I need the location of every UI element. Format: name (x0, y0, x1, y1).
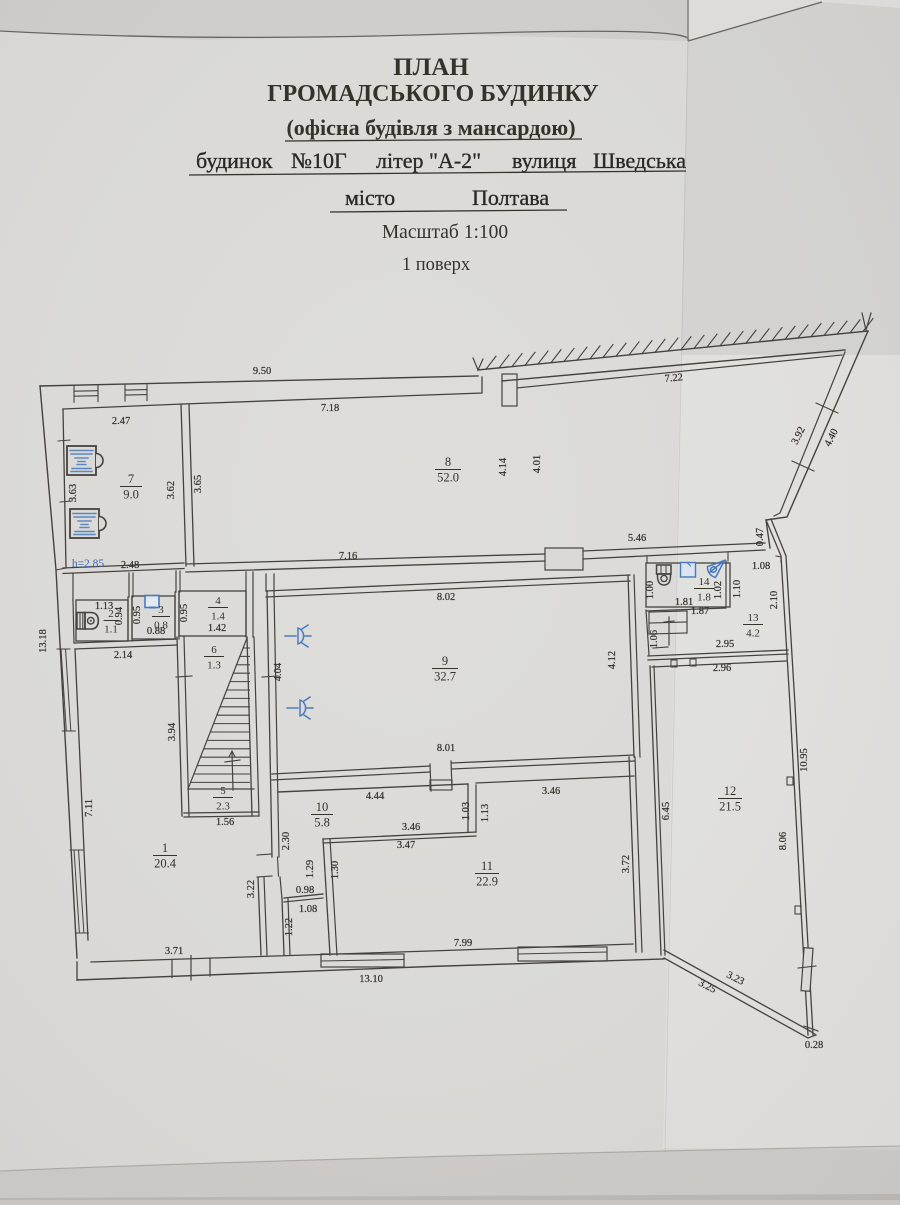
svg-text:4.01: 4.01 (532, 455, 543, 473)
svg-text:6.45: 6.45 (661, 802, 672, 820)
svg-text:1.02: 1.02 (713, 581, 724, 599)
svg-text:2.3: 2.3 (216, 801, 230, 813)
svg-text:4.2: 4.2 (746, 628, 760, 640)
svg-text:1.08: 1.08 (752, 561, 770, 572)
svg-text:1.22: 1.22 (284, 918, 295, 936)
svg-text:1.87: 1.87 (691, 606, 709, 617)
svg-text:10: 10 (316, 800, 329, 814)
svg-text:2.30: 2.30 (281, 832, 292, 850)
svg-text:1.56: 1.56 (216, 817, 234, 828)
svg-text:3: 3 (158, 604, 164, 616)
svg-text:1.08: 1.08 (299, 904, 317, 915)
svg-text:Масштаб 1:100: Масштаб 1:100 (382, 222, 508, 243)
svg-text:7: 7 (128, 472, 134, 486)
svg-text:ГРОМАДСЬКОГО БУДИНКУ: ГРОМАДСЬКОГО БУДИНКУ (267, 81, 599, 107)
svg-text:3.94: 3.94 (167, 722, 178, 741)
svg-text:2.14: 2.14 (114, 650, 133, 661)
svg-text:8.01: 8.01 (437, 743, 455, 754)
svg-text:2.95: 2.95 (716, 639, 734, 650)
svg-text:3.47: 3.47 (397, 840, 415, 851)
svg-text:1.00: 1.00 (645, 581, 656, 599)
svg-text:0.98: 0.98 (296, 885, 314, 896)
svg-text:(офісна будівля з мансардою): (офісна будівля з мансардою) (286, 115, 575, 140)
svg-text:2.47: 2.47 (112, 416, 130, 427)
svg-text:2: 2 (108, 608, 114, 620)
svg-text:52.0: 52.0 (437, 471, 459, 485)
svg-text:№10Г: №10Г (291, 148, 347, 173)
svg-text:0.95: 0.95 (179, 604, 190, 622)
svg-text:4.44: 4.44 (366, 791, 385, 802)
svg-text:2.10: 2.10 (769, 591, 780, 609)
svg-text:2.96: 2.96 (713, 663, 731, 674)
svg-text:32.7: 32.7 (434, 670, 456, 684)
svg-text:1.4: 1.4 (211, 611, 225, 623)
svg-text:0.8: 0.8 (154, 620, 168, 632)
svg-text:14: 14 (699, 576, 711, 588)
svg-text:1.29: 1.29 (305, 860, 316, 878)
svg-text:1.10: 1.10 (732, 580, 743, 598)
svg-text:1 поверх: 1 поверх (402, 255, 471, 275)
svg-text:9.50: 9.50 (253, 366, 271, 377)
svg-text:3.22: 3.22 (246, 880, 257, 898)
svg-text:20.4: 20.4 (154, 857, 177, 871)
svg-text:1.03: 1.03 (461, 802, 472, 820)
svg-text:8.06: 8.06 (778, 832, 789, 850)
svg-text:3.46: 3.46 (402, 822, 420, 833)
svg-text:4: 4 (215, 595, 221, 607)
svg-text:5.8: 5.8 (314, 816, 330, 830)
svg-text:3.71: 3.71 (165, 946, 183, 957)
svg-text:3.62: 3.62 (166, 481, 177, 499)
svg-text:21.5: 21.5 (719, 800, 741, 814)
svg-text:3.65: 3.65 (193, 475, 204, 493)
svg-text:1.42: 1.42 (208, 623, 226, 634)
svg-text:7.11: 7.11 (84, 799, 95, 817)
svg-text:Шведська: Шведська (593, 148, 686, 173)
svg-text:10.95: 10.95 (799, 748, 810, 772)
svg-text:7.99: 7.99 (454, 938, 472, 949)
svg-text:будинок: будинок (196, 148, 273, 173)
svg-text:3.46: 3.46 (542, 786, 560, 797)
svg-text:13.10: 13.10 (359, 974, 383, 985)
svg-text:13.18: 13.18 (38, 629, 49, 653)
svg-text:0.94: 0.94 (114, 606, 125, 625)
svg-text:3.63: 3.63 (68, 484, 79, 502)
svg-text:1.3: 1.3 (207, 660, 221, 672)
svg-text:2.48: 2.48 (121, 560, 139, 571)
svg-text:вулиця: вулиця (512, 148, 576, 173)
svg-text:5: 5 (220, 785, 226, 797)
svg-text:h=2.85: h=2.85 (72, 558, 105, 570)
svg-text:0.95: 0.95 (132, 606, 143, 624)
svg-text:4.14: 4.14 (498, 457, 509, 476)
svg-text:9: 9 (442, 654, 448, 668)
svg-text:5.46: 5.46 (628, 533, 646, 544)
svg-text:1.30: 1.30 (330, 861, 341, 879)
svg-text:0.47: 0.47 (755, 528, 766, 546)
svg-text:7.18: 7.18 (321, 403, 339, 414)
svg-text:1.13: 1.13 (480, 804, 491, 822)
svg-text:1.8: 1.8 (697, 592, 711, 604)
svg-text:6: 6 (211, 644, 217, 656)
svg-text:1: 1 (162, 841, 168, 855)
svg-text:Полтава: Полтава (472, 185, 549, 210)
svg-text:4.12: 4.12 (607, 651, 618, 669)
svg-text:11: 11 (481, 859, 493, 873)
svg-text:12: 12 (724, 784, 737, 798)
svg-text:8: 8 (445, 455, 451, 469)
svg-text:8.02: 8.02 (437, 592, 455, 603)
svg-text:місто: місто (345, 185, 395, 210)
svg-text:13: 13 (748, 612, 760, 624)
svg-text:1.06: 1.06 (649, 630, 660, 648)
svg-text:22.9: 22.9 (476, 875, 498, 889)
svg-text:7.16: 7.16 (339, 551, 357, 562)
svg-text:1.1: 1.1 (104, 624, 118, 636)
svg-text:4.04: 4.04 (273, 662, 284, 681)
svg-text:9.0: 9.0 (123, 488, 139, 502)
svg-text:0.28: 0.28 (805, 1040, 823, 1051)
svg-text:літер "А-2": літер "А-2" (376, 148, 481, 173)
svg-text:7.22: 7.22 (664, 372, 683, 385)
svg-text:ПЛАН: ПЛАН (393, 54, 469, 81)
svg-text:3.72: 3.72 (621, 855, 632, 873)
